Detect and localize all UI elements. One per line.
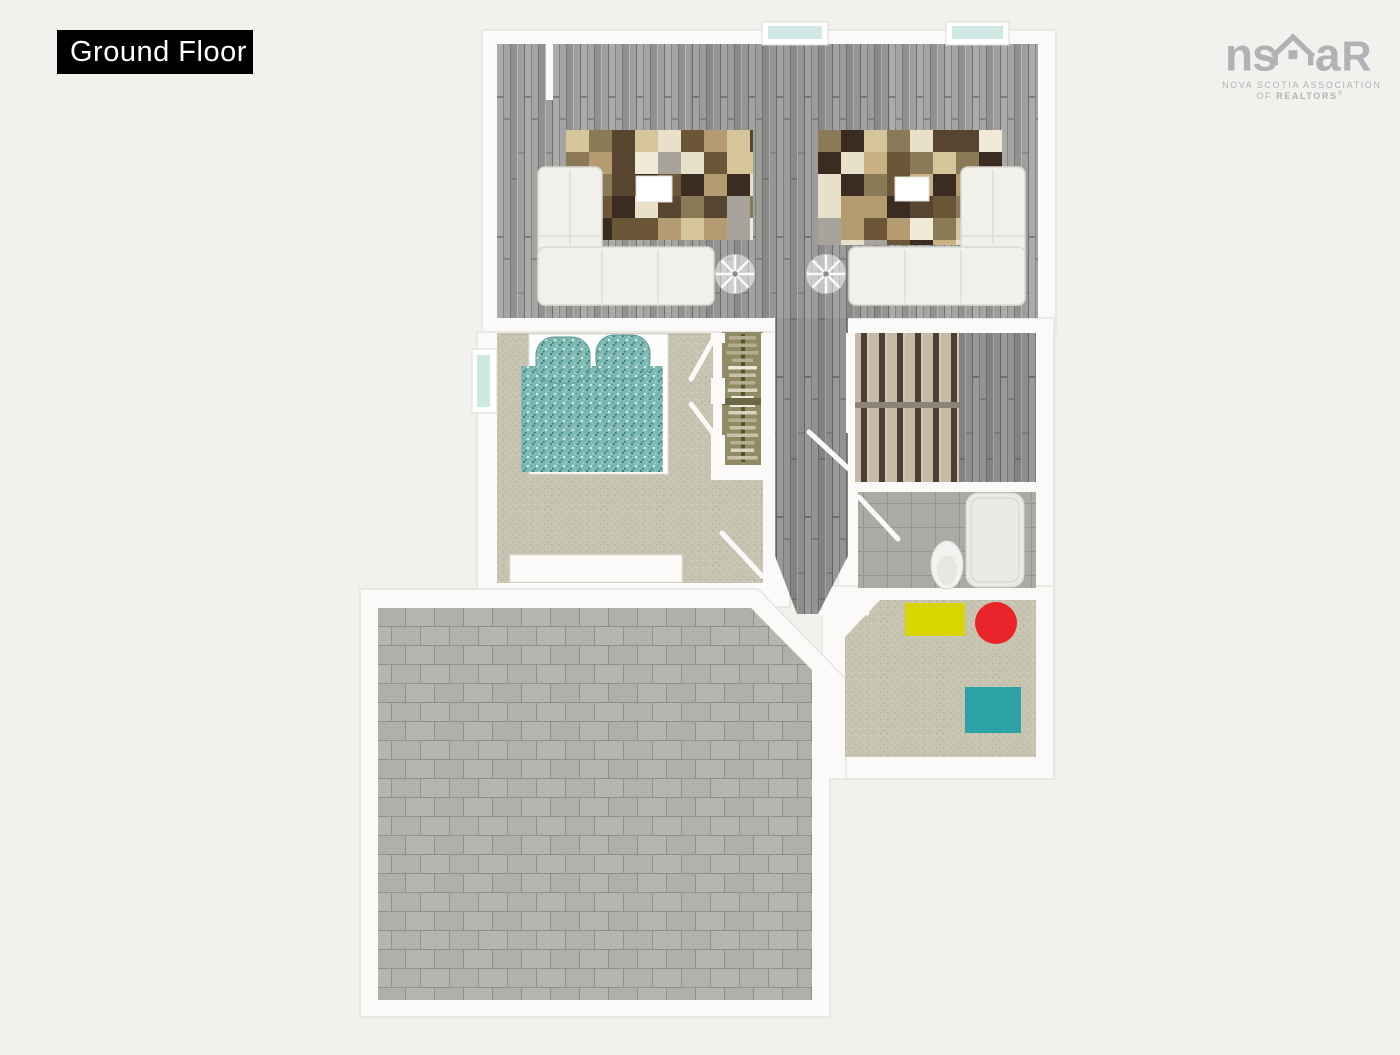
hall-stair-wall xyxy=(846,333,855,433)
hallway-shading xyxy=(775,318,848,614)
window-glass-top-right xyxy=(952,26,1003,39)
logo-a: a xyxy=(1315,29,1341,78)
logo-subtitle-line1: NOVA SCOTIA ASSOCIATION xyxy=(1222,80,1378,90)
nsar-logo-wordmark: ns a R xyxy=(1225,26,1375,78)
stair-landing-shading xyxy=(959,333,1036,482)
logo-subtitle-line2: OF REALTORS® xyxy=(1222,91,1378,101)
toilet-seat xyxy=(937,555,957,585)
stair-flight-upper xyxy=(855,333,959,402)
logo-house-door xyxy=(1289,50,1298,59)
bathtub xyxy=(966,493,1024,587)
bed-pillow-left xyxy=(536,337,590,383)
registered-mark: ® xyxy=(1338,91,1344,97)
window-glass-bedroom xyxy=(477,355,490,407)
coffee-table-right xyxy=(895,177,929,201)
ceiling-fan-right xyxy=(806,254,846,294)
closet-shelf-divider xyxy=(722,398,763,405)
garage-floor xyxy=(378,608,812,1000)
ceiling-fan-left xyxy=(715,254,755,294)
dresser xyxy=(510,555,682,582)
closet-hall-wall xyxy=(761,333,775,480)
coffee-table-left xyxy=(636,176,672,202)
nsar-logo: ns a R NOVA SCOTIA ASSOCIATION OF REALTO… xyxy=(1222,26,1378,101)
floor-title-badge: Ground Floor xyxy=(57,30,253,74)
floor-title-label: Ground Floor xyxy=(70,36,247,69)
bed-pillow-right xyxy=(596,335,650,379)
logo-ns: ns xyxy=(1225,29,1277,78)
window-glass-top-left xyxy=(768,26,822,39)
open-door-leaf xyxy=(546,38,553,100)
floor-plan-canvas xyxy=(0,0,1400,1050)
closet-bottom-wall xyxy=(711,465,775,480)
logo-r: R xyxy=(1341,33,1371,78)
stair-flight-lower xyxy=(855,408,959,482)
yellow-play-mat xyxy=(905,603,965,636)
stair-mid-rail xyxy=(855,402,959,408)
red-pouf xyxy=(975,602,1017,644)
closet-wall-stub-mid xyxy=(711,378,725,404)
floor-plan-page: Ground Floor ns a R NOVA SCOTIA ASSOCIAT… xyxy=(0,0,1400,1050)
teal-stool xyxy=(965,687,1021,733)
bed-duvet xyxy=(521,366,663,472)
sofa-left-seat xyxy=(538,247,714,305)
sofa-right-seat xyxy=(849,247,1025,305)
